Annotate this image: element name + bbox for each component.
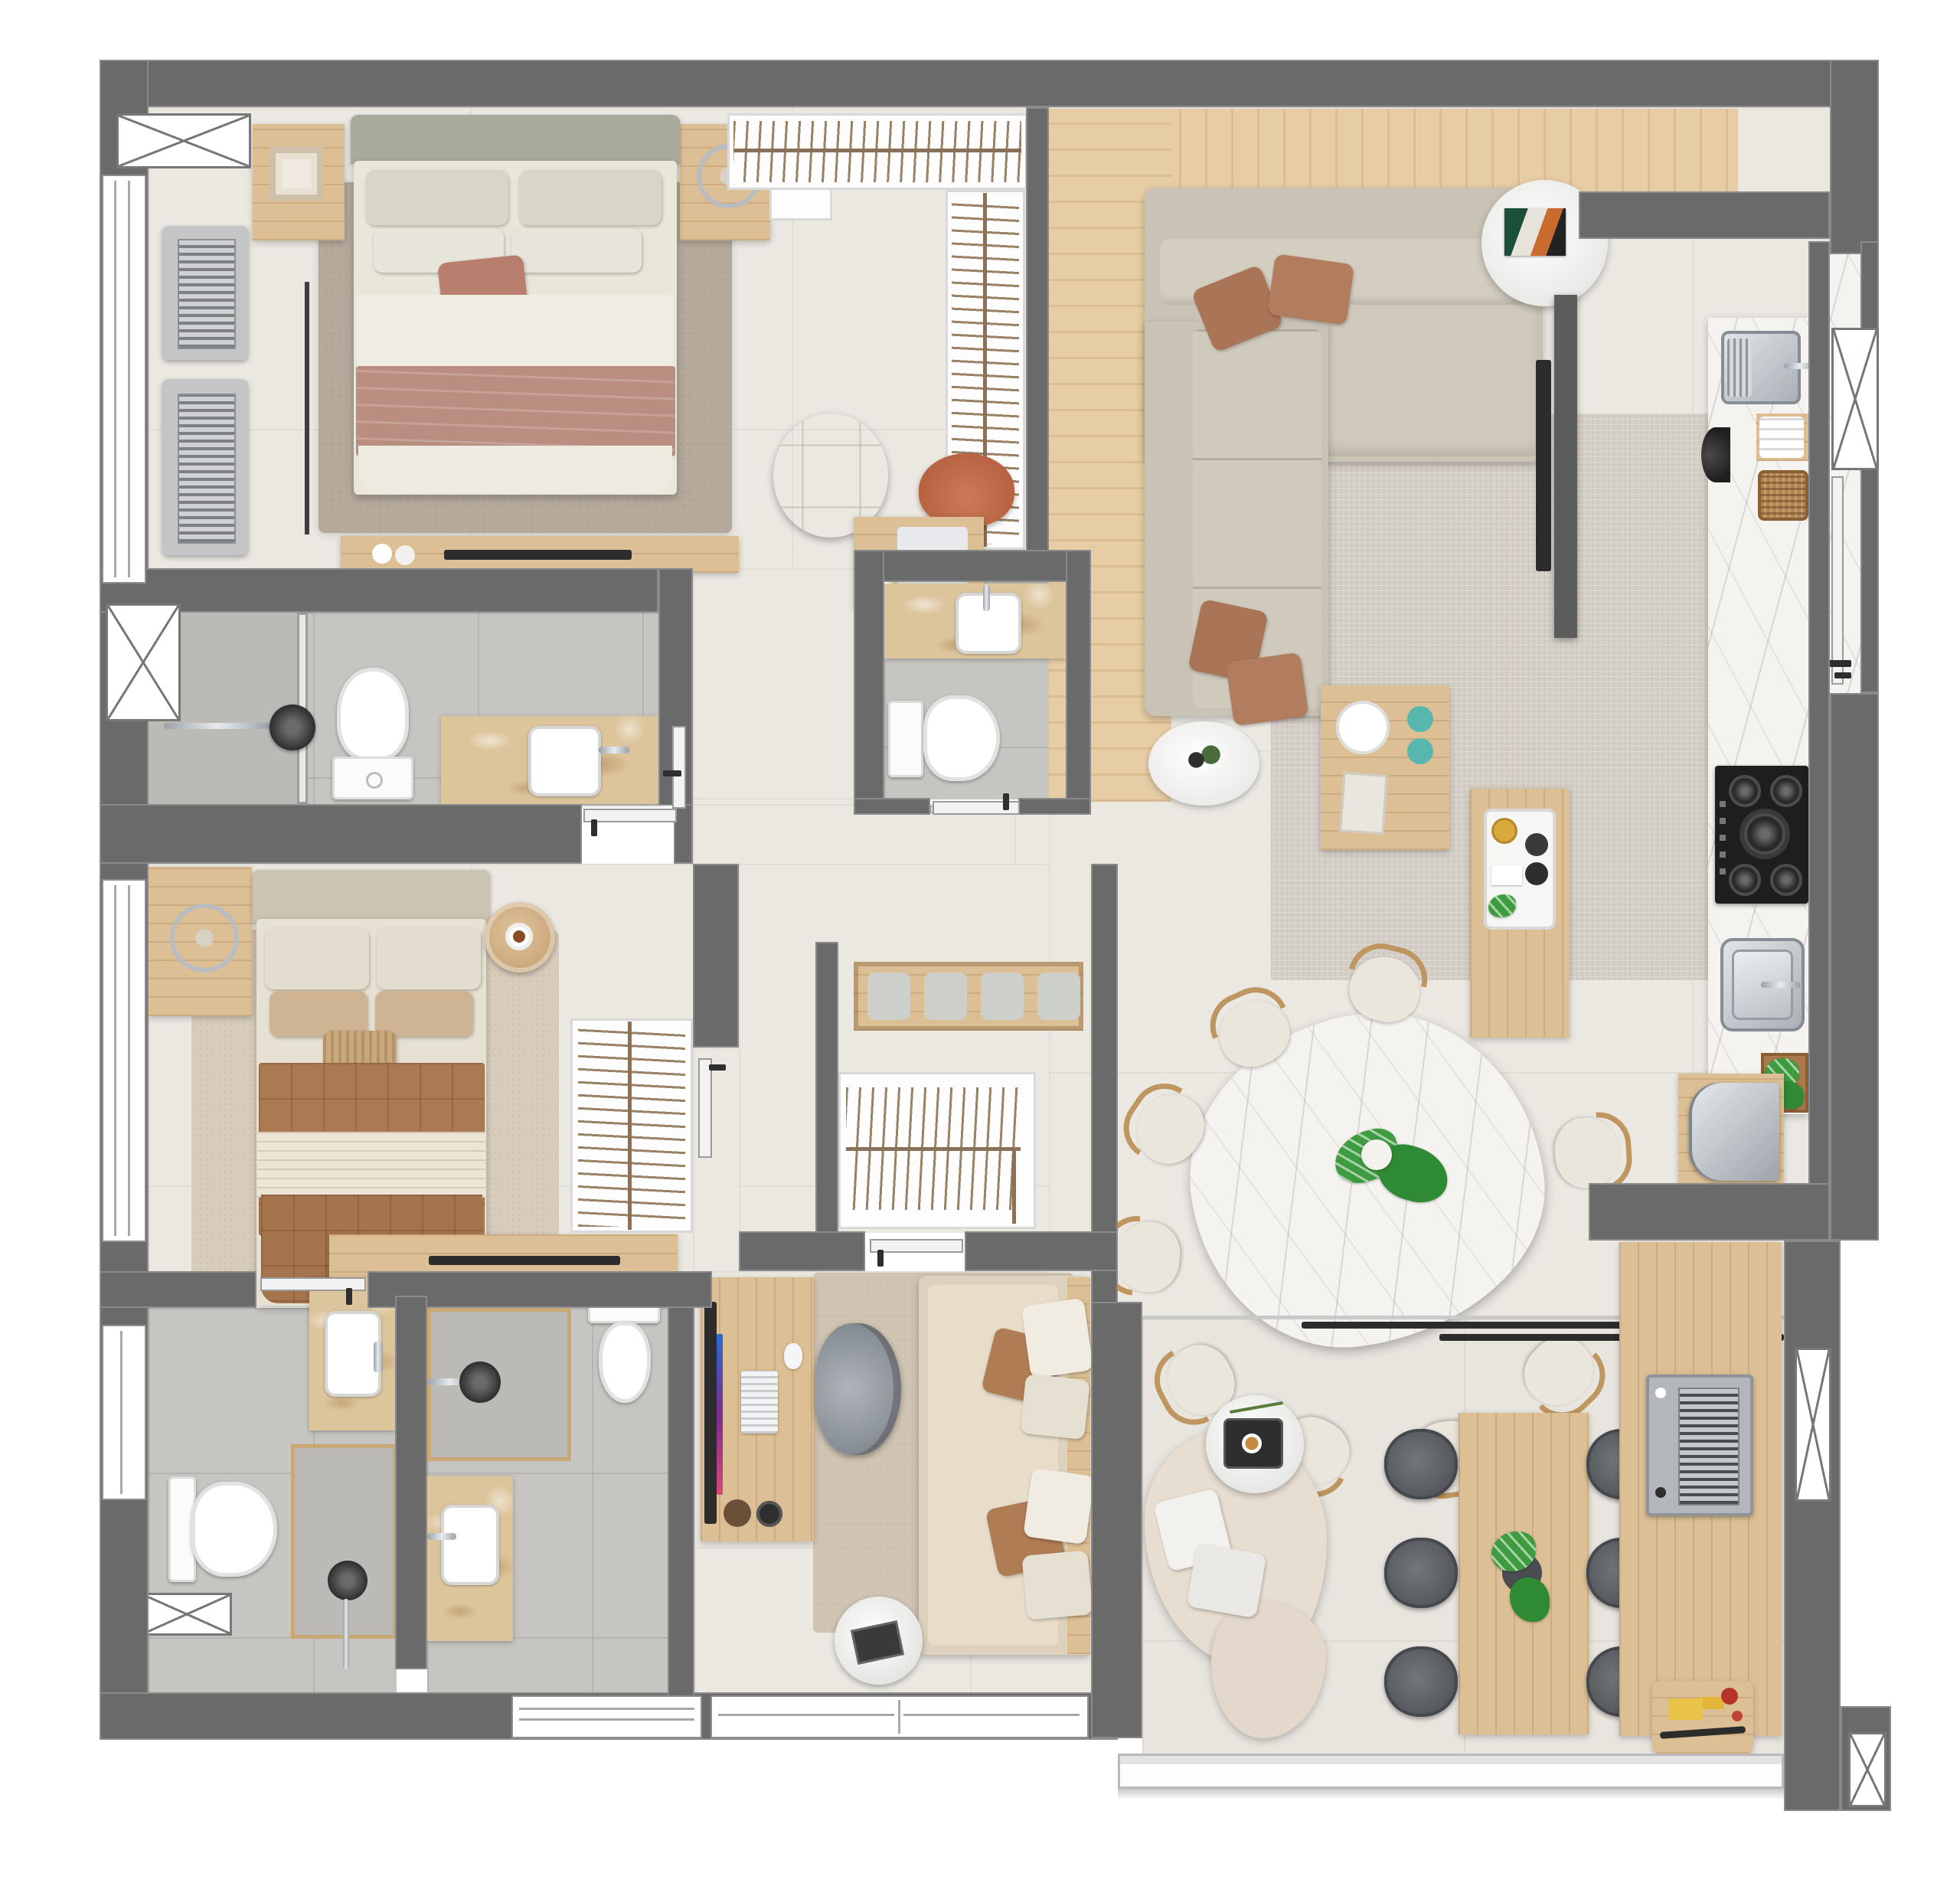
terrace-chair	[1384, 1646, 1458, 1717]
wall-bath-divider	[395, 1296, 427, 1669]
wall-bedroom1-bottom	[100, 568, 658, 613]
shower1-arm	[164, 723, 271, 729]
wall-right-kitchen	[1830, 693, 1879, 1241]
wall-right-top	[1830, 60, 1879, 254]
cooktop-knobs	[1720, 795, 1726, 874]
wall-top	[100, 60, 1879, 107]
door-bedroom2	[583, 809, 677, 822]
sideboard-decor	[372, 544, 392, 564]
wall-office-top-b	[965, 1231, 1118, 1271]
toilet3-bowl	[599, 1322, 651, 1403]
daybed-pillow-white	[1020, 1374, 1090, 1440]
shower3-head	[459, 1362, 501, 1403]
tray-card	[1491, 865, 1522, 885]
office-chair	[815, 1323, 901, 1455]
door-corridor2-handle	[709, 1064, 726, 1071]
toilet1-button	[366, 772, 383, 789]
bench-cushion	[924, 973, 967, 1020]
wall-bedroom2-right	[693, 864, 739, 1048]
wall-tv	[1536, 360, 1551, 571]
bedroom2-window	[102, 879, 146, 1242]
door-office-handle	[877, 1250, 884, 1267]
burner	[1729, 775, 1761, 807]
vanity1-faucet	[599, 747, 629, 754]
bed2-headboard	[253, 870, 490, 922]
door-bathroom1	[672, 726, 686, 809]
wall-powder-top	[854, 550, 1091, 582]
bed1-pillow	[519, 170, 661, 225]
floor-plan	[0, 0, 1960, 1883]
wall-balcony-right	[1784, 1241, 1841, 1811]
burner	[1770, 864, 1802, 896]
terrace-chair	[1384, 1538, 1458, 1608]
wall-powder-right	[1066, 550, 1091, 812]
wall-kitchen-bottom	[1589, 1183, 1830, 1241]
grill-vents	[1678, 1388, 1739, 1505]
tomato	[1721, 1688, 1738, 1705]
entry-door-handle-inner	[1834, 672, 1851, 678]
door-office	[870, 1239, 963, 1253]
bench-cushion	[1037, 973, 1080, 1020]
nightstand2-clock-tray	[170, 904, 239, 973]
art-print	[1504, 208, 1566, 256]
wicker-basket	[1758, 470, 1808, 521]
duct-shaft	[142, 1593, 232, 1636]
vanity2-faucet	[374, 1342, 383, 1372]
door-bathroom2-handle	[346, 1288, 352, 1305]
monitor	[704, 1302, 717, 1524]
balcony-shadow	[1118, 1789, 1891, 1800]
chaise-pillow	[1186, 1543, 1266, 1619]
bed2-pillow	[377, 928, 481, 989]
towel-rolls	[1759, 417, 1804, 458]
coat-rail-rod-return	[1012, 1150, 1016, 1224]
balcony-shaft-upper	[1795, 1348, 1831, 1502]
bathroom2-window	[102, 1325, 146, 1500]
wall-bath2-top-a	[100, 1271, 256, 1308]
entry-door-leaf	[1831, 476, 1844, 685]
wall-office-top-a	[739, 1231, 865, 1271]
tray-coffee-cup	[1242, 1433, 1262, 1453]
centerpiece-vase	[1361, 1139, 1392, 1170]
shower2-head	[328, 1561, 367, 1600]
burner	[1770, 775, 1802, 807]
soundbar	[444, 550, 632, 560]
daybed-pillow-white	[1021, 1298, 1093, 1378]
vanity1-sink	[528, 726, 601, 796]
wall-kitchen-top-stub	[1579, 191, 1830, 239]
bedroom1-window	[102, 175, 146, 584]
wall-powder-left	[854, 550, 884, 812]
bed2-throw	[257, 1132, 485, 1198]
shower1-head	[269, 704, 315, 750]
coat-rail-rod	[846, 1147, 1021, 1151]
wall-kitchen-counter-back	[1808, 241, 1830, 1241]
burner-large	[1744, 813, 1785, 855]
keyboard	[741, 1371, 778, 1433]
door-bathroom1-handle	[663, 770, 681, 776]
closet-chair	[919, 453, 1014, 527]
wall-hall-band-a	[100, 804, 582, 864]
door-corridor2	[698, 1058, 712, 1158]
bed1-foot	[358, 446, 672, 493]
door-powder-handle	[1003, 793, 1009, 810]
wall-powder-bottom-b	[1018, 798, 1091, 815]
duct-shaft-left	[106, 603, 181, 721]
vanity3-sink	[441, 1505, 499, 1585]
terrace-chair	[1384, 1429, 1458, 1499]
bathroom3-vent-window	[511, 1695, 702, 1738]
cutting-board	[1652, 1681, 1753, 1754]
pencil-cup	[724, 1499, 751, 1527]
powder-toilet-tank	[888, 701, 923, 777]
coffee-table-book	[1339, 772, 1387, 835]
daybed-pillow-white	[1022, 1550, 1093, 1620]
sink1-drainboard	[1727, 338, 1752, 397]
vanity2-sink	[325, 1311, 381, 1397]
grill-knob	[1655, 1388, 1666, 1398]
bench-cushion	[867, 973, 910, 1020]
media-soundbar	[429, 1256, 620, 1265]
bed2-pillow	[265, 928, 369, 989]
mouse	[784, 1343, 802, 1369]
curtain-rail	[305, 282, 309, 534]
office-window	[710, 1695, 1089, 1738]
bedroom2-rail-rod	[628, 1022, 632, 1230]
burner	[1729, 864, 1761, 896]
wall-bench-back	[815, 942, 838, 1271]
wall-balcony-left	[1091, 1302, 1142, 1738]
door-bedroom2-handle	[591, 819, 597, 836]
monitor-screen-glow	[717, 1334, 723, 1495]
sofa-pillow-leather	[1226, 652, 1309, 727]
daybed-pillow-white	[1023, 1468, 1095, 1545]
wall-closet-living	[1026, 107, 1049, 551]
ac-unit-2-grille	[178, 394, 236, 544]
coffee-table-tray	[1336, 701, 1390, 754]
toilet1-bowl	[337, 668, 409, 761]
nightstand-left-decor	[269, 147, 323, 201]
oval-table-decor	[1185, 744, 1222, 770]
ac-unit-1-grille	[178, 239, 236, 349]
bed2-pillow-tan	[269, 991, 367, 1037]
bed1-blanket	[356, 366, 675, 456]
fridge	[1689, 1083, 1779, 1181]
balcony-shaft-lower	[1848, 1732, 1886, 1807]
vanity3-faucet	[427, 1533, 456, 1540]
bench-cushion	[981, 973, 1024, 1020]
rail-rod-top	[733, 149, 1021, 152]
bed1-pillow	[511, 228, 642, 273]
bed2-pillow-tan	[375, 991, 473, 1037]
bed1-pillow	[366, 170, 508, 225]
tray-jar-gold	[1491, 818, 1517, 844]
toilet2-bowl	[191, 1482, 277, 1577]
wall-faucet-black	[1701, 427, 1730, 482]
tray-jar-dark	[1525, 833, 1548, 856]
corridor-floor	[693, 568, 854, 813]
powder-faucet	[983, 585, 990, 611]
tv-panel	[1554, 295, 1577, 638]
sofa-pillow-leather	[1267, 253, 1354, 325]
cheese-block	[1669, 1698, 1703, 1720]
duct-shaft-top-left	[116, 113, 251, 168]
sink2-faucet	[1761, 982, 1801, 988]
kitchen-window-shaft	[1831, 328, 1879, 470]
coffee-table-plant	[1407, 706, 1433, 732]
wall-powder-bottom-a	[854, 798, 930, 815]
wall-bath3-right	[668, 1271, 694, 1740]
parapet	[1118, 1754, 1784, 1789]
shower2-arm	[343, 1599, 349, 1669]
bedroom2-hanging-rail	[578, 1025, 685, 1227]
powder-toilet-bowl	[923, 695, 1000, 781]
bed1-headboard	[351, 115, 680, 164]
pen-holder	[756, 1501, 782, 1527]
coffee-cup-fill	[513, 930, 525, 943]
